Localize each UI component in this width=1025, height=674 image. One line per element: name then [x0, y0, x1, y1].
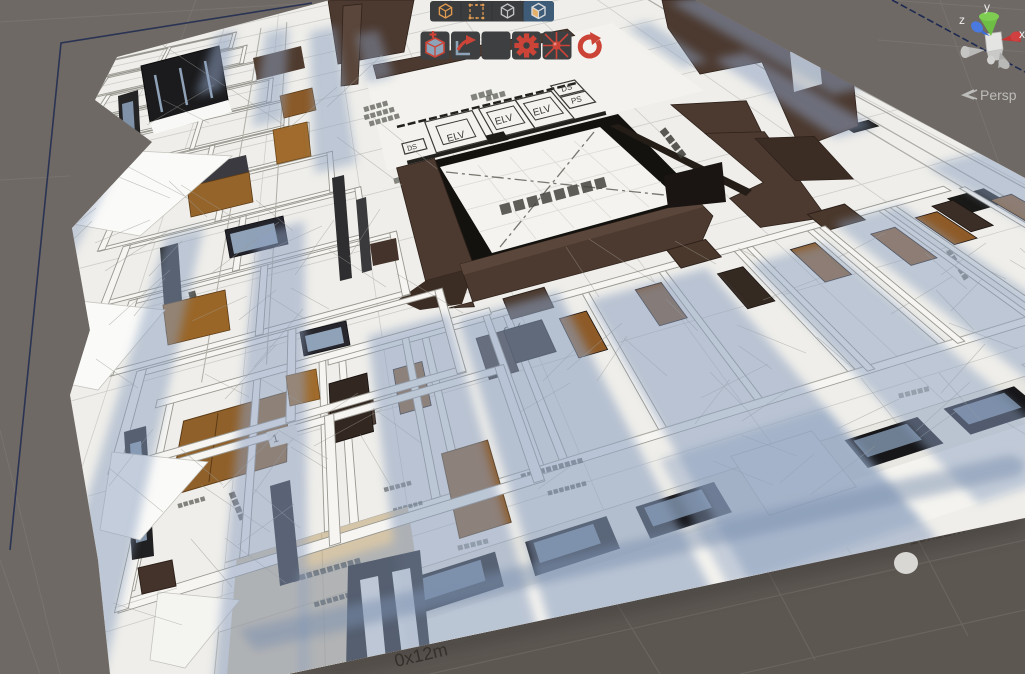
svg-text:x: x [1019, 27, 1025, 41]
svg-text:z: z [959, 13, 965, 27]
svg-text:y: y [984, 0, 990, 14]
svg-text:Persp: Persp [980, 87, 1017, 103]
